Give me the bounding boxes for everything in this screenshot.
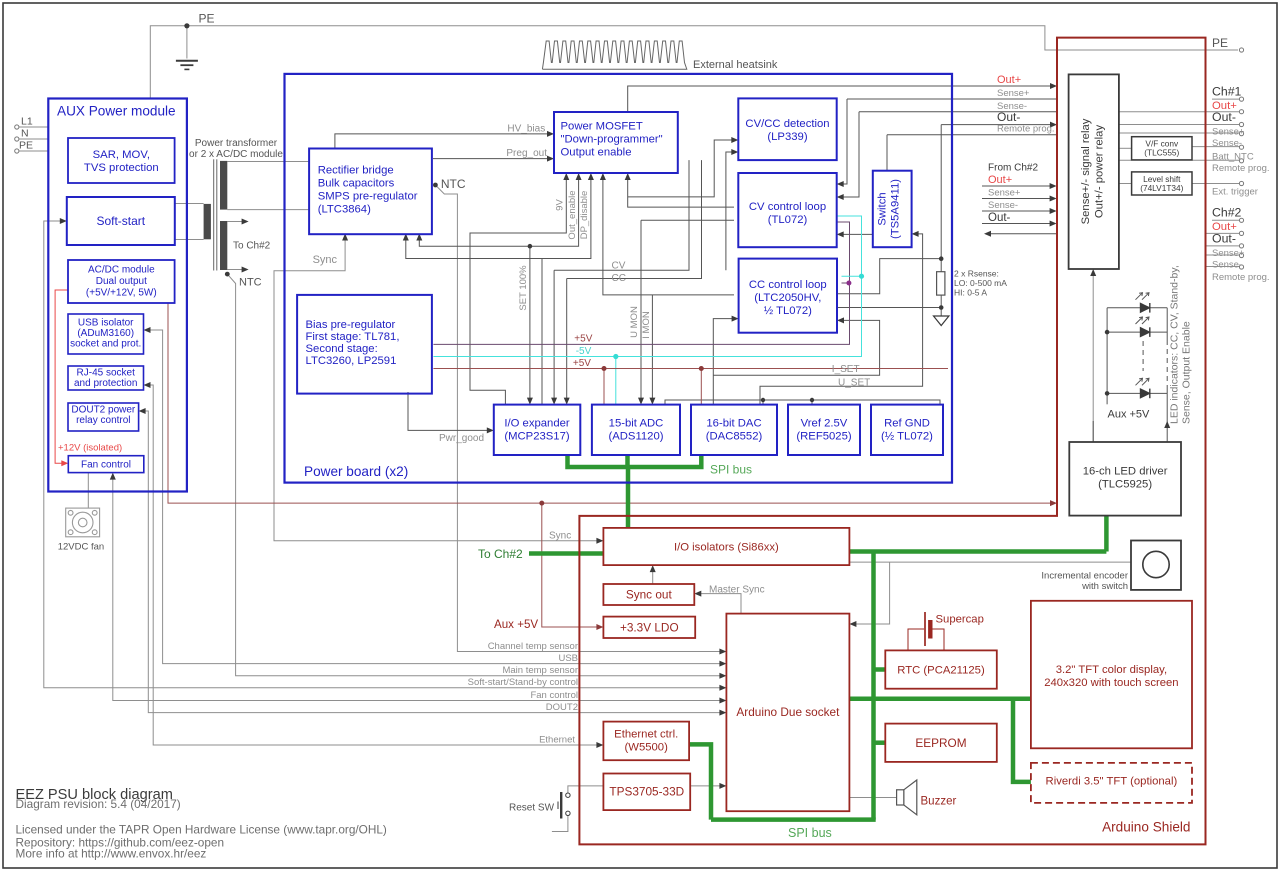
svg-text:USB: USB [558,653,578,664]
svg-text:Sense-: Sense- [1212,138,1242,149]
svg-text:Sense+/- signal relay: Sense+/- signal relay [1080,118,1092,224]
svg-text:U MON: U MON [629,306,640,338]
svg-text:Ethernet ctrl.: Ethernet ctrl. [614,729,678,741]
svg-text:Aux +5V: Aux +5V [1108,409,1151,421]
svg-text:L1: L1 [21,116,33,128]
svg-text:15-bit ADC: 15-bit ADC [609,418,664,430]
svg-text:Sync: Sync [549,531,571,542]
svg-text:(DAC8552): (DAC8552) [706,431,763,443]
svg-text:Bulk capacitors: Bulk capacitors [318,178,395,190]
svg-text:Out-: Out- [988,212,1011,224]
svg-text:Soft-start: Soft-start [96,214,145,228]
svg-text:LTC3260, LP2591: LTC3260, LP2591 [306,355,397,367]
svg-text:Remote prog.: Remote prog. [1212,272,1270,283]
svg-text:External heatsink: External heatsink [693,59,778,71]
svg-text:More info at http://www.envox.: More info at http://www.envox.hr/eez [16,846,207,860]
svg-text:Power MOSFET: Power MOSFET [561,121,643,133]
svg-text:SAR, MOV,: SAR, MOV, [93,149,150,161]
svg-text:SPI bus: SPI bus [788,826,832,840]
svg-text:From Ch#2: From Ch#2 [988,163,1038,174]
svg-text:(W5500): (W5500) [625,742,669,754]
svg-text:DOUT2: DOUT2 [546,702,578,713]
svg-text:Sync: Sync [313,254,338,266]
svg-text:+5V: +5V [574,334,592,345]
svg-text:Sense+: Sense+ [988,188,1021,199]
svg-text:(LP339): (LP339) [767,131,807,143]
svg-text:PE: PE [1212,36,1228,50]
svg-text:N: N [21,128,29,140]
svg-text:(TLC555): (TLC555) [1144,148,1179,158]
svg-text:Out-: Out- [1212,110,1236,124]
svg-text:Second stage:: Second stage: [306,343,378,355]
svg-text:Ch#1: Ch#1 [1212,84,1242,98]
svg-text:+12V (isolated): +12V (isolated) [58,443,122,454]
svg-text:PE: PE [199,12,215,26]
svg-text:HI: 0-5 A: HI: 0-5 A [954,288,987,298]
svg-text:SPI bus: SPI bus [710,463,752,477]
svg-text:Batt_NTC: Batt_NTC [1212,152,1254,163]
svg-text:16-ch LED driver: 16-ch LED driver [1083,466,1168,478]
svg-text:First stage: TL781,: First stage: TL781, [306,331,400,343]
svg-text:Switch: Switch [877,192,889,225]
svg-text:Preg_out: Preg_out [506,148,547,159]
svg-text:3.2" TFT color display,: 3.2" TFT color display, [1056,664,1167,676]
svg-text:PE: PE [19,140,33,152]
svg-text:Channel temp sensor: Channel temp sensor [488,641,578,652]
svg-text:Out-: Out- [1212,231,1236,245]
svg-text:16-bit DAC: 16-bit DAC [706,418,761,430]
svg-text:Sense, Output Enable: Sense, Output Enable [1181,321,1193,424]
svg-text:Out+: Out+ [988,174,1012,186]
svg-text:(REF5025): (REF5025) [796,431,851,443]
svg-text:Power board (x2): Power board (x2) [304,464,408,479]
svg-text:CV control loop: CV control loop [749,201,826,213]
svg-text:Sense+: Sense+ [1212,248,1245,259]
svg-text:USB isolator: USB isolator [78,318,134,329]
svg-text:Remote prog.: Remote prog. [1212,163,1270,174]
svg-text:DOUT2 power: DOUT2 power [71,405,136,416]
svg-text:Main temp sensor: Main temp sensor [502,665,578,676]
svg-text:with switch: with switch [1081,581,1128,592]
svg-text:Fan control: Fan control [81,460,131,471]
svg-text:Buzzer: Buzzer [921,796,957,808]
svg-text:I MON: I MON [641,311,652,339]
svg-text:Arduino Shield: Arduino Shield [1102,820,1190,835]
svg-text:(74LV1T34): (74LV1T34) [1140,183,1183,193]
svg-text:CV: CV [612,261,626,272]
svg-text:and protection: and protection [74,378,137,389]
svg-text:Sense-: Sense- [988,200,1018,211]
svg-text:relay control: relay control [76,415,130,426]
svg-text:CV/CC detection: CV/CC detection [745,118,829,130]
svg-text:Ref GND: Ref GND [884,418,930,430]
svg-text:(TLC5925): (TLC5925) [1098,479,1152,491]
svg-text:RJ-45 socket: RJ-45 socket [77,368,136,379]
svg-text:(TL072): (TL072) [768,214,808,226]
svg-text:"Down-programmer": "Down-programmer" [561,134,663,146]
svg-text:12VDC fan: 12VDC fan [58,542,104,553]
svg-text:SMPS pre-regulator: SMPS pre-regulator [318,191,418,203]
svg-text:I_SET: I_SET [832,364,860,375]
svg-text:To Ch#2: To Ch#2 [233,241,271,252]
svg-text:+5V: +5V [573,358,591,369]
svg-text:Out+: Out+ [997,74,1021,86]
svg-text:(TS5A9411): (TS5A9411) [890,179,902,239]
svg-text:Ch#2: Ch#2 [1212,206,1242,220]
svg-text:Pwr_good: Pwr_good [439,433,484,444]
svg-text:Fan control: Fan control [530,690,578,701]
svg-text:Reset SW: Reset SW [509,803,555,814]
svg-text:U_SET: U_SET [838,378,870,389]
svg-text:socket and prot.: socket and prot. [70,339,141,350]
svg-text:Vref 2.5V: Vref 2.5V [801,418,848,430]
svg-text:DP_disable: DP_disable [579,191,590,240]
svg-text:Diagram revision: 5.4 (04/2017: Diagram revision: 5.4 (04/2017) [16,797,181,811]
svg-text:Sense-: Sense- [1212,260,1242,271]
svg-text:Rectifier bridge: Rectifier bridge [318,165,394,177]
svg-text:Sense+: Sense+ [1212,126,1245,137]
svg-text:-5V: -5V [576,346,592,357]
svg-text:Out_enable: Out_enable [567,190,578,239]
svg-text:9V: 9V [555,199,566,211]
svg-text:RTC (PCA21125): RTC (PCA21125) [897,665,985,677]
svg-text:Output enable: Output enable [561,147,632,159]
svg-text:Master Sync: Master Sync [709,585,765,596]
svg-text:AC/DC module: AC/DC module [88,265,155,276]
svg-text:Dual output: Dual output [96,276,147,287]
svg-text:240x320 with touch screen: 240x320 with touch screen [1044,677,1178,689]
svg-text:Supercap: Supercap [936,614,984,626]
svg-text:TPS3705-33D: TPS3705-33D [609,785,684,799]
svg-text:(ADuM3160): (ADuM3160) [77,328,134,339]
svg-text:Bias pre-regulator: Bias pre-regulator [306,319,396,331]
svg-text:Soft-start/Stand-by control: Soft-start/Stand-by control [468,677,578,688]
svg-text:or 2 x AC/DC module: or 2 x AC/DC module [189,149,283,160]
svg-text:LED indicators: CC, CV, Stand-: LED indicators: CC, CV, Stand-by, [1169,265,1181,424]
svg-text:I/O expander: I/O expander [504,418,570,430]
svg-text:Power transformer: Power transformer [195,138,278,149]
svg-text:CC control loop: CC control loop [749,279,827,291]
svg-text:Sync out: Sync out [626,588,673,602]
svg-text:(LTC3864): (LTC3864) [318,204,371,216]
svg-text:Remote prog.: Remote prog. [997,124,1055,135]
svg-text:(½ TL072): (½ TL072) [881,431,933,443]
svg-text:NTC: NTC [239,277,262,289]
svg-text:TVS protection: TVS protection [84,162,159,174]
svg-text:(MCP23S17): (MCP23S17) [504,431,570,443]
svg-text:Out-: Out- [997,110,1020,124]
svg-text:(LTC2050HV,: (LTC2050HV, [754,292,821,304]
svg-text:+3.3V LDO: +3.3V LDO [620,621,679,635]
svg-text:NTC: NTC [441,177,466,191]
svg-text:Aux +5V: Aux +5V [494,618,538,631]
svg-text:Ext. trigger: Ext. trigger [1212,187,1258,198]
svg-text:AUX Power module: AUX Power module [57,104,176,119]
svg-text:HV_bias: HV_bias [507,124,545,135]
svg-text:(ADS1120): (ADS1120) [608,431,663,443]
svg-text:½ TL072): ½ TL072) [764,305,812,317]
svg-text:Out+/- power relay: Out+/- power relay [1094,125,1106,219]
svg-text:CC: CC [612,273,626,284]
svg-text:2 x Rsense:: 2 x Rsense: [954,269,999,279]
svg-text:Incremental encoder: Incremental encoder [1041,571,1128,582]
svg-text:Ethernet: Ethernet [539,735,575,746]
svg-text:LO: 0-500 mA: LO: 0-500 mA [954,278,1007,288]
svg-text:I/O isolators (Si86xx): I/O isolators (Si86xx) [674,542,779,554]
svg-text:(+5V/+12V, 5W): (+5V/+12V, 5W) [86,288,157,299]
svg-text:Arduino Due socket: Arduino Due socket [736,705,840,719]
svg-text:To Ch#2: To Ch#2 [478,547,523,561]
svg-text:EEPROM: EEPROM [915,736,966,750]
svg-text:Sense+: Sense+ [997,88,1030,99]
svg-text:SET 100%: SET 100% [518,265,529,311]
svg-text:Riverdi 3.5" TFT (optional): Riverdi 3.5" TFT (optional) [1046,776,1178,788]
